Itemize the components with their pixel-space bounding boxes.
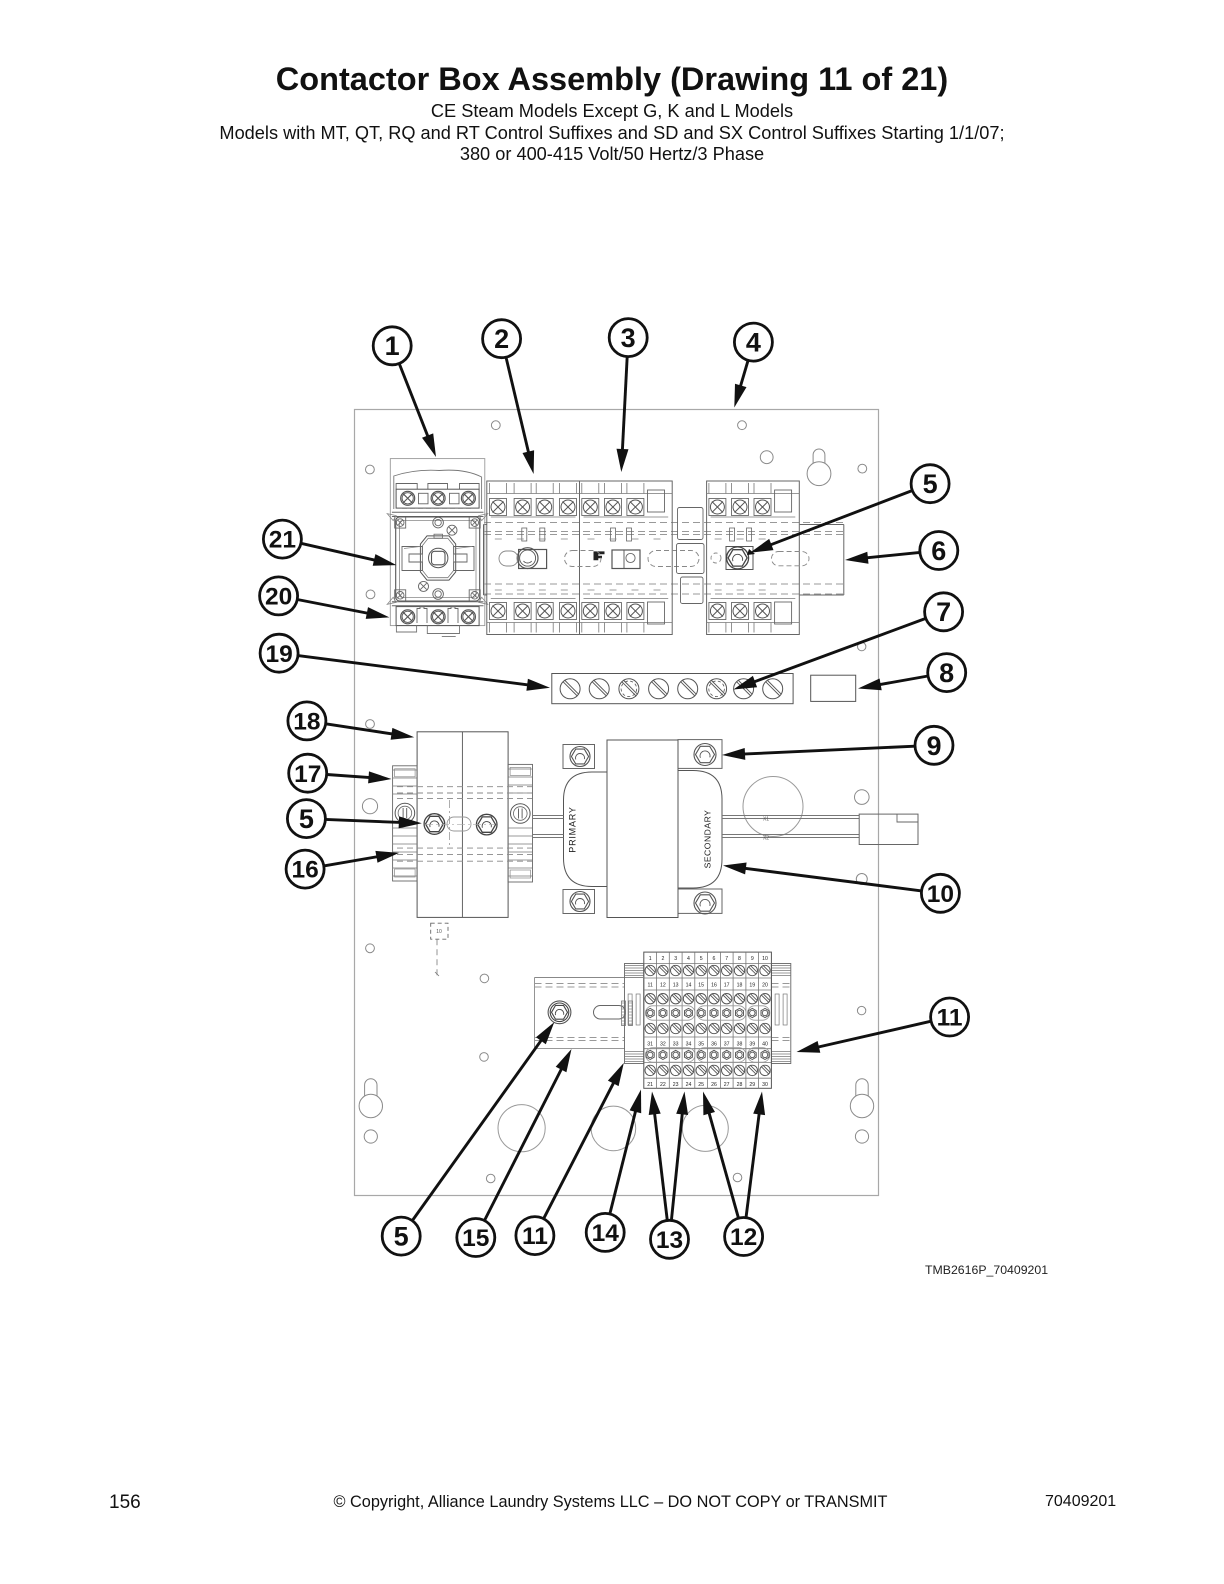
svg-text:11: 11 — [937, 1005, 963, 1032]
svg-text:6: 6 — [931, 536, 946, 566]
svg-text:5: 5 — [923, 469, 938, 499]
svg-text:40: 40 — [762, 1042, 768, 1048]
svg-text:3: 3 — [674, 956, 677, 962]
svg-text:4: 4 — [746, 328, 761, 358]
svg-text:7: 7 — [725, 956, 728, 962]
svg-text:20: 20 — [762, 982, 768, 988]
svg-text:PRIMARY: PRIMARY — [568, 806, 578, 852]
svg-text:7: 7 — [936, 597, 951, 627]
svg-text:17: 17 — [294, 761, 321, 788]
svg-text:26: 26 — [711, 1082, 717, 1088]
svg-text:22: 22 — [660, 1082, 666, 1088]
svg-text:38: 38 — [737, 1042, 743, 1048]
svg-text:34: 34 — [686, 1042, 692, 1048]
svg-text:23: 23 — [673, 1082, 679, 1088]
svg-text:11: 11 — [648, 982, 653, 988]
svg-text:SECONDARY: SECONDARY — [703, 810, 713, 869]
svg-text:21: 21 — [647, 1082, 653, 1088]
svg-text:33: 33 — [673, 1042, 679, 1048]
svg-text:36: 36 — [711, 1042, 717, 1048]
svg-text:17: 17 — [724, 982, 730, 988]
svg-text:13: 13 — [656, 1227, 683, 1254]
svg-text:35: 35 — [698, 1042, 704, 1048]
svg-text:39: 39 — [749, 1042, 755, 1048]
svg-text:27: 27 — [724, 1082, 730, 1088]
svg-text:8: 8 — [939, 658, 954, 688]
svg-text:5: 5 — [299, 804, 314, 834]
svg-text:3: 3 — [621, 323, 636, 353]
svg-text:24: 24 — [686, 1082, 692, 1088]
svg-text:14: 14 — [592, 1220, 620, 1247]
svg-text:37: 37 — [724, 1042, 730, 1048]
svg-text:6: 6 — [713, 956, 716, 962]
svg-text:X1: X1 — [763, 817, 769, 823]
svg-text:10: 10 — [762, 956, 768, 962]
svg-text:15: 15 — [462, 1225, 489, 1252]
svg-text:1: 1 — [385, 331, 400, 361]
svg-text:11: 11 — [522, 1223, 548, 1250]
svg-text:8: 8 — [738, 956, 741, 962]
svg-text:10: 10 — [927, 881, 954, 908]
svg-text:30: 30 — [762, 1082, 768, 1088]
svg-text:25: 25 — [698, 1082, 704, 1088]
svg-text:16: 16 — [291, 857, 318, 884]
svg-text:9: 9 — [751, 956, 754, 962]
svg-text:31: 31 — [647, 1042, 653, 1048]
svg-text:14: 14 — [686, 982, 692, 988]
svg-text:12: 12 — [730, 1224, 757, 1251]
svg-text:5: 5 — [700, 956, 703, 962]
svg-text:1: 1 — [649, 956, 652, 962]
svg-text:20: 20 — [265, 584, 292, 611]
svg-text:4: 4 — [687, 956, 690, 962]
svg-text:13: 13 — [673, 982, 679, 988]
svg-text:19: 19 — [265, 641, 292, 668]
svg-text:18: 18 — [293, 709, 320, 736]
svg-text:10: 10 — [436, 929, 442, 935]
svg-text:18: 18 — [737, 982, 743, 988]
svg-text:2: 2 — [661, 956, 664, 962]
svg-text:5: 5 — [394, 1222, 409, 1252]
svg-text:29: 29 — [749, 1082, 755, 1088]
svg-text:2: 2 — [494, 324, 509, 354]
svg-text:X2: X2 — [763, 836, 769, 842]
svg-text:32: 32 — [660, 1042, 666, 1048]
svg-text:12: 12 — [660, 982, 666, 988]
svg-text:19: 19 — [749, 982, 755, 988]
svg-text:21: 21 — [269, 527, 296, 554]
svg-text:16: 16 — [711, 982, 717, 988]
svg-text:28: 28 — [737, 1082, 743, 1088]
svg-text:9: 9 — [926, 731, 941, 761]
svg-text:15: 15 — [698, 982, 704, 988]
